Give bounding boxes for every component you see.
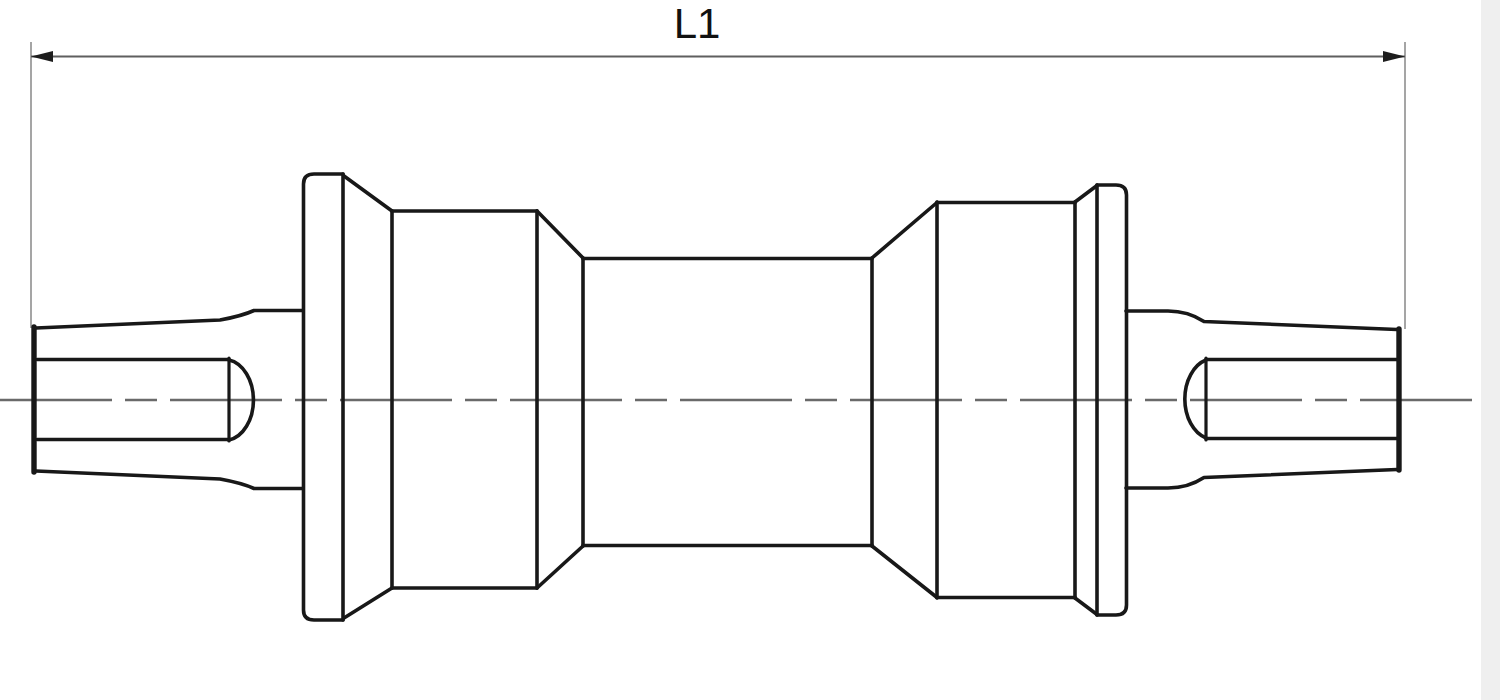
drawing-background (0, 0, 1500, 700)
technical-drawing: L1 (0, 0, 1500, 700)
dimension-label: L1 (674, 0, 721, 47)
right-gutter (1481, 0, 1500, 700)
drawing-page: L1 (0, 0, 1500, 700)
